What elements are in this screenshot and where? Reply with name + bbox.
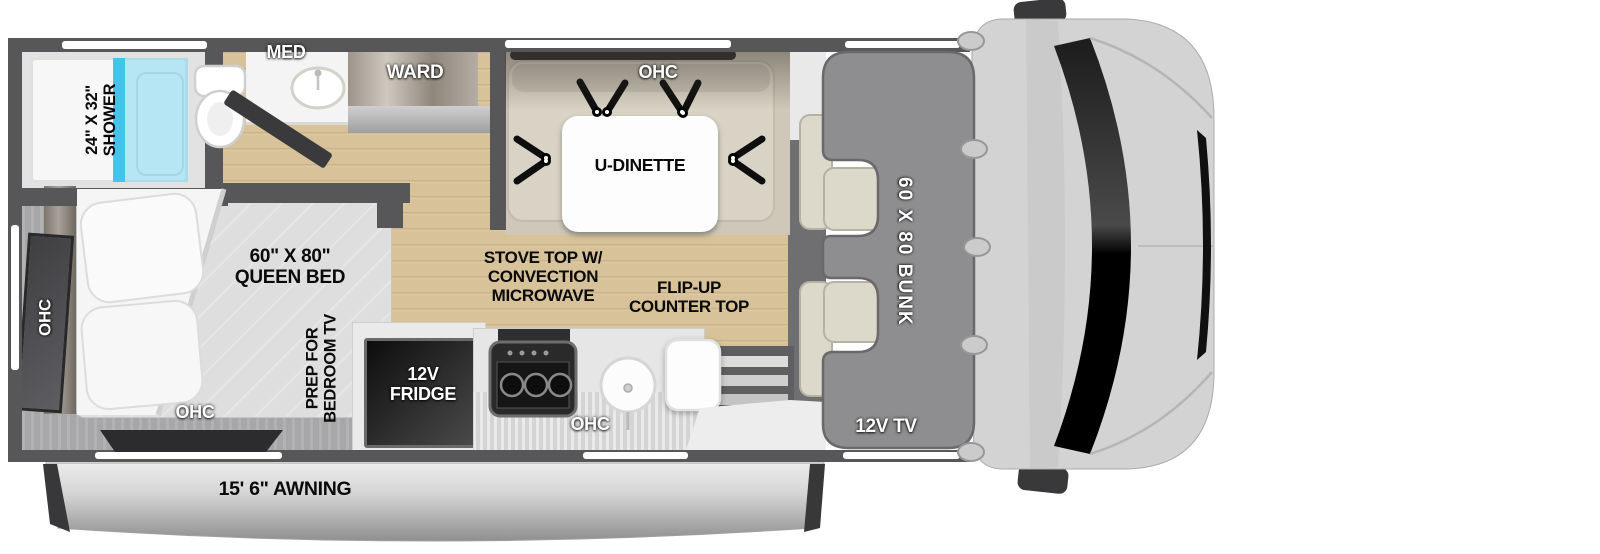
prep-tv-line1: PREP FOR bbox=[304, 293, 322, 443]
awning-label: 15' 6" AWNING bbox=[195, 479, 375, 501]
prep-bedroom-tv-label: PREP FOR BEDROOM TV bbox=[304, 293, 341, 443]
stove-line1: STOVE TOP W/ bbox=[458, 248, 628, 267]
prep-tv-line2: BEDROOM TV bbox=[322, 293, 340, 443]
bathroom-sink bbox=[292, 68, 344, 108]
shower-label: 24" X 32" SHOWER bbox=[83, 55, 127, 185]
rv-floorplan: 24" X 32" SHOWER MED WARD OHC U-DINETTE … bbox=[0, 0, 1600, 554]
stove-line2: CONVECTION bbox=[458, 267, 628, 286]
flip-up-counter bbox=[666, 340, 720, 410]
kitchen-ohc-label: OHC bbox=[556, 414, 624, 434]
entry-landing bbox=[686, 400, 826, 450]
queen-bed-label: 60" X 80" QUEEN BED bbox=[212, 246, 368, 289]
awning bbox=[43, 463, 825, 541]
flip-line2: COUNTER TOP bbox=[606, 297, 772, 316]
bunk-label: 60 X 80 BUNK bbox=[886, 142, 922, 362]
fridge-line2: FRIDGE bbox=[376, 384, 470, 404]
bedroom-ohc-bottom-panel bbox=[100, 430, 283, 452]
dinette-ohc-label: OHC bbox=[628, 62, 688, 82]
med-label: MED bbox=[250, 42, 322, 62]
truck-cab bbox=[972, 0, 1214, 495]
fridge-label: 12V FRIDGE bbox=[376, 364, 470, 404]
bedroom-ohc-bottom-label: OHC bbox=[152, 402, 238, 422]
ward-label: WARD bbox=[372, 62, 458, 83]
cab-roof-band bbox=[1026, 19, 1065, 469]
stove-top bbox=[490, 342, 576, 416]
bed-text: QUEEN BED bbox=[212, 267, 368, 288]
flip-line1: FLIP-UP bbox=[606, 278, 772, 297]
shower-size-text: 24" X 32" bbox=[83, 55, 101, 185]
fridge-line1: 12V bbox=[376, 364, 470, 384]
u-dinette-label: U-DINETTE bbox=[572, 156, 708, 176]
bed-linens bbox=[77, 189, 224, 415]
shower-text: SHOWER bbox=[101, 55, 119, 185]
stove-label: STOVE TOP W/ CONVECTION MICROWAVE bbox=[458, 248, 628, 305]
cab-tv-label: 12V TV bbox=[834, 416, 938, 437]
stove-line3: MICROWAVE bbox=[458, 286, 628, 305]
bed-size-text: 60" X 80" bbox=[212, 246, 368, 267]
bedroom-ohc-side-label: OHC bbox=[35, 263, 54, 373]
flip-up-label: FLIP-UP COUNTER TOP bbox=[606, 278, 772, 316]
